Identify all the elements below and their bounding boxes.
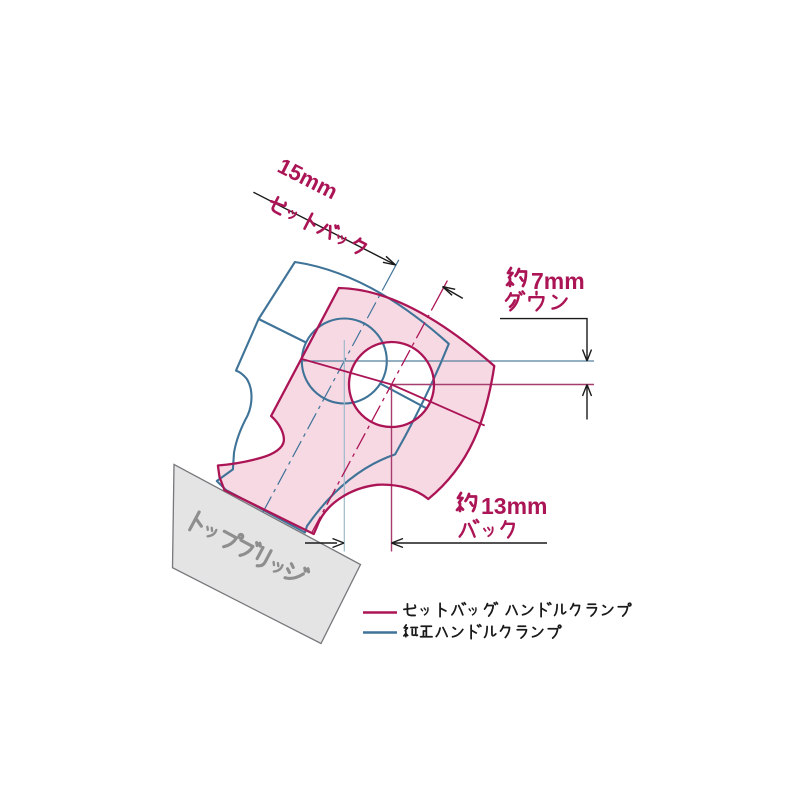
svg-text:13mm: 13mm — [481, 493, 547, 519]
svg-text:7mm: 7mm — [531, 268, 585, 294]
